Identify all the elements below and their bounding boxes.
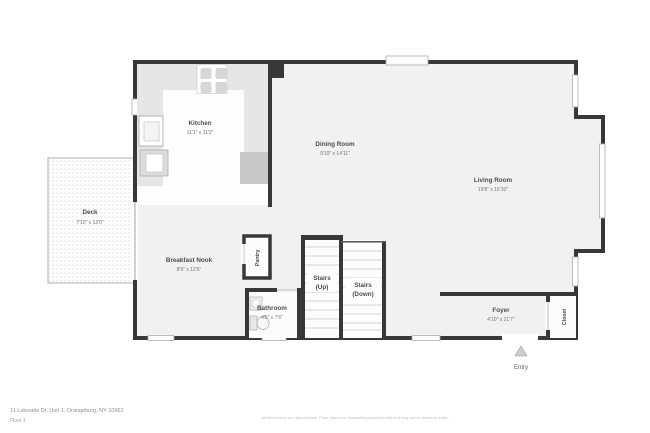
room-dims-foyer: 4'10" x 21'7" (487, 317, 515, 323)
room-label-breakfast-nook: Breakfast Nook (166, 257, 213, 264)
room-label-kitchen: Kitchen (188, 120, 211, 127)
window-right-upper (573, 75, 579, 107)
room-label-living-room: Living Room (474, 177, 513, 184)
room-dims-deck: 7'10" x 12'0" (76, 220, 104, 226)
window-right-lower (573, 257, 579, 286)
floor-plan-page: Kitchen 11'1" x 11'3" Dining Room 9'10" … (0, 0, 650, 433)
room-label-bathroom: Bathroom (257, 305, 287, 312)
stairwell (301, 235, 386, 338)
room-dims-living-room: 19'8" x 16'10" (478, 187, 508, 193)
entry-opening (502, 334, 538, 342)
window-left (132, 99, 138, 115)
room-label-dining-room: Dining Room (315, 141, 355, 148)
room-label-foyer: Foyer (492, 307, 510, 314)
deck-door (132, 202, 138, 280)
bathroom-room (245, 288, 301, 338)
room-dims-breakfast-nook: 8'9" x 12'6" (177, 267, 202, 273)
entry-arrow-icon (515, 346, 527, 356)
sink-icon (139, 116, 163, 146)
fridge (240, 152, 268, 184)
counter-right (244, 64, 268, 152)
room-dims-kitchen: 11'1" x 11'3" (187, 130, 214, 136)
window-bottom-hall (412, 336, 440, 341)
room-label-stairs-down: Stairs (354, 282, 372, 289)
footer-floor-label: Floor 1 (10, 418, 26, 424)
window-bottom-nook (148, 336, 174, 341)
footer-disclaimer: All dimensions are approximate. Floor pl… (261, 415, 448, 420)
floor-plan-canvas: Kitchen 11'1" x 11'3" Dining Room 9'10" … (0, 0, 650, 433)
room-label-pantry: Pantry (255, 250, 261, 267)
room-label-closet: Closet (562, 309, 568, 326)
room-sub-stairs-up: (Up) (316, 284, 329, 291)
room-dims-dining-room: 9'10" x 14'11" (320, 151, 350, 157)
dishwasher-icon (140, 150, 168, 176)
stove-icon (197, 65, 227, 94)
footer-address: 11 Lakeside Dr, Unit 1, Orangeburg, NY 1… (10, 408, 124, 414)
room-label-deck: Deck (82, 209, 98, 216)
entry-label: Entry (514, 365, 528, 371)
room-label-stairs-up: Stairs (313, 275, 331, 282)
room-sub-stairs-down: (Down) (352, 291, 373, 298)
room-dims-bathroom: 4'5" x 7'6" (261, 315, 283, 321)
closet-room (545, 294, 576, 340)
window-top (386, 56, 428, 65)
window-right-outer (600, 144, 606, 218)
